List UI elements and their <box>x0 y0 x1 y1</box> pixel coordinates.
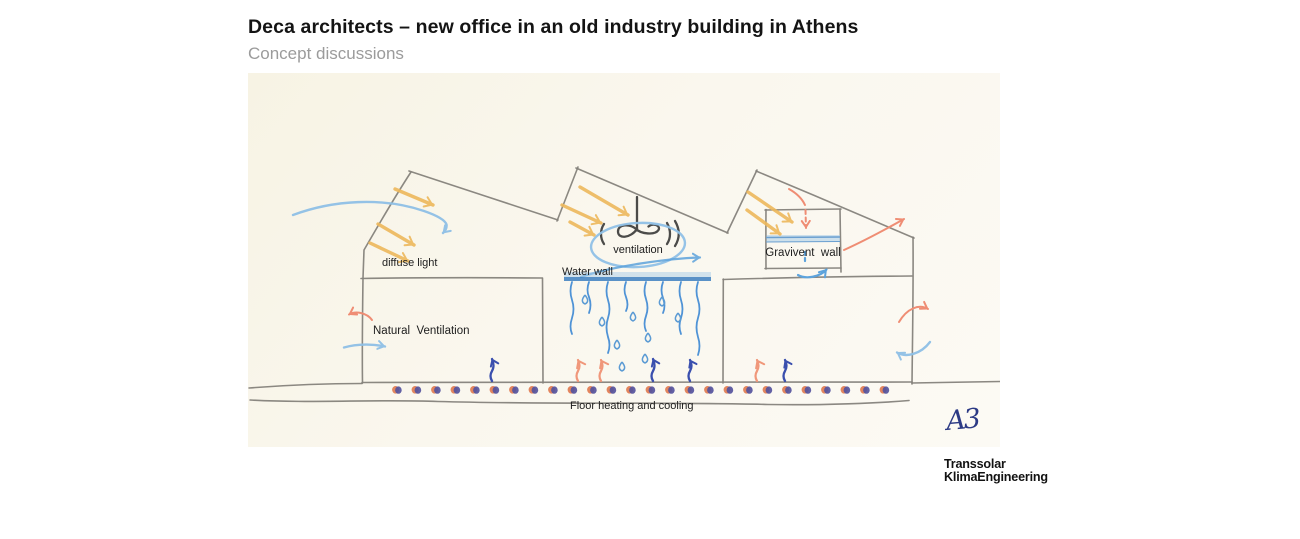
warm-air-down-dashed <box>806 210 807 228</box>
floor-heating-pipes <box>388 384 890 396</box>
left-room-ceiling <box>361 278 542 279</box>
ground-line-right <box>912 382 1000 384</box>
right-wall <box>912 237 913 384</box>
floor-radiant-arrows <box>491 359 787 381</box>
cool-air-out-arrow <box>798 270 827 278</box>
ceiling-fan <box>581 197 700 277</box>
sunlight-arrows <box>370 187 792 261</box>
cool-circulation-arrow <box>897 342 930 355</box>
water-droplets <box>582 295 680 371</box>
gravivent-box <box>765 209 841 272</box>
label-natural-ventilation: Natural Ventilation <box>373 325 470 337</box>
warm-air-out-arrow <box>844 219 904 250</box>
sawtooth-edge-1 <box>557 167 578 221</box>
sawtooth-edge-2 <box>727 170 757 233</box>
concept-sketch-paper: diffuse light ventilation Water wall Gra… <box>248 73 1000 447</box>
floor-slab-top <box>362 382 912 383</box>
gravivent-airflow <box>789 189 904 277</box>
gravivent-water-line-2 <box>766 242 840 243</box>
wind-arrow <box>293 202 447 233</box>
slide-subtitle: Concept discussions <box>248 44 1008 64</box>
label-water-wall: Water wall <box>562 266 613 278</box>
signature-a3: A3 <box>942 403 981 437</box>
fan-motion-right-2 <box>675 221 679 246</box>
label-gravivent-wall: Gravivent wall <box>765 247 840 259</box>
gravivent-water-line-1 <box>766 237 840 238</box>
transsolar-logo: Transsolar KlimaEngineering <box>944 458 1048 484</box>
logo-line-1: Transsolar <box>944 458 1048 471</box>
ground-line-left <box>249 384 362 389</box>
label-diffuse-light: diffuse light <box>382 257 437 269</box>
label-floor-heating-cooling: Floor heating and cooling <box>570 400 694 412</box>
slide-title: Deca architects – new office in an old i… <box>248 16 1008 39</box>
slide-header: Deca architects – new office in an old i… <box>248 16 1008 64</box>
roof-3 <box>756 171 914 238</box>
gravivent-bottom <box>765 268 841 269</box>
label-ventilation: ventilation <box>613 244 663 256</box>
left-room-right-wall <box>543 278 544 383</box>
water-wall <box>564 272 711 371</box>
gravivent-right <box>840 209 841 272</box>
logo-line-2: KlimaEngineering <box>944 471 1048 484</box>
fan-blades <box>618 225 659 237</box>
warm-air-exit-arrow <box>349 313 372 320</box>
concept-sketch: diffuse light ventilation Water wall Gra… <box>248 73 1000 447</box>
fresh-air-entry-arrow <box>344 345 385 348</box>
gravivent-water-band <box>767 235 841 242</box>
